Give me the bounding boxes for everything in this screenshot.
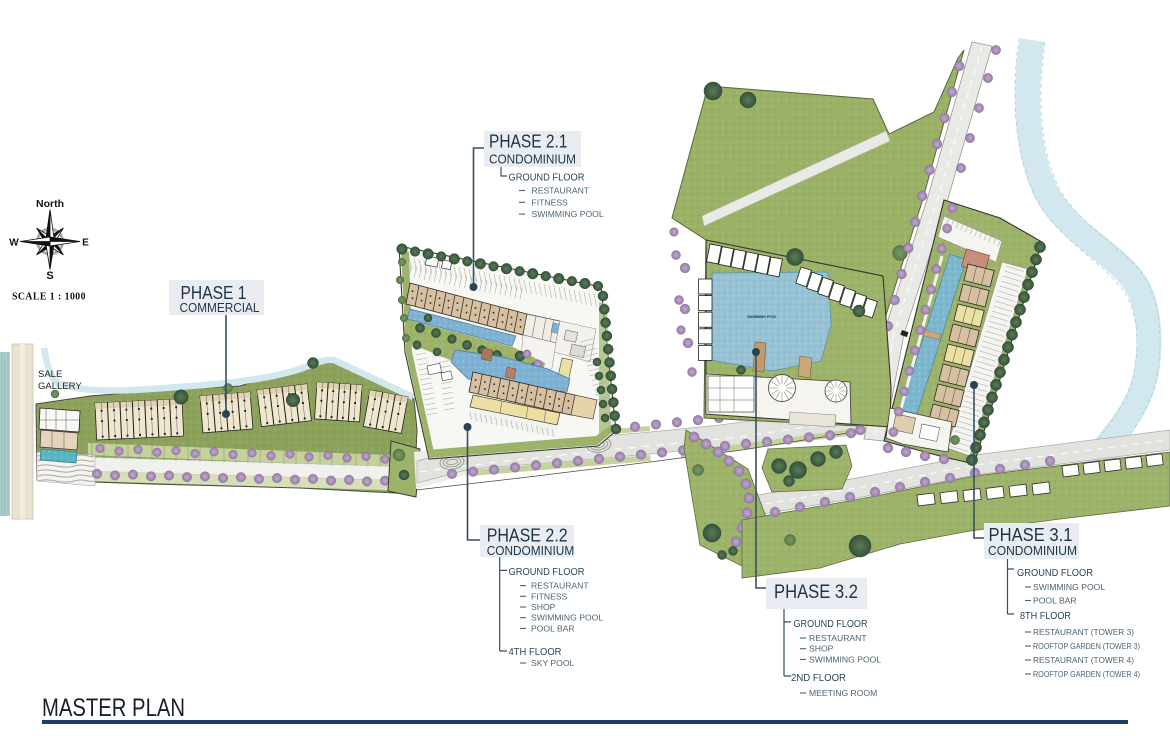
svg-text:PHASE 3.2: PHASE 3.2 [774, 582, 858, 603]
svg-text:SWIMMING POOL: SWIMMING POOL [809, 654, 881, 664]
svg-text:SKY POOL: SKY POOL [531, 658, 575, 668]
svg-text:GROUND FLOOR: GROUND FLOOR [509, 172, 585, 184]
svg-text:4TH FLOOR: 4TH FLOOR [509, 646, 562, 658]
svg-text:SWIMMING POOL: SWIMMING POOL [747, 315, 777, 319]
svg-text:POOL BAR: POOL BAR [531, 623, 575, 633]
svg-text:2ND FLOOR: 2ND FLOOR [791, 672, 846, 684]
svg-text:SALE: SALE [38, 369, 62, 380]
svg-text:PHASE 2.2: PHASE 2.2 [487, 526, 568, 546]
svg-text:PHASE 2.1: PHASE 2.1 [489, 132, 568, 152]
svg-text:S: S [46, 270, 53, 282]
svg-text:COMMERCIAL: COMMERCIAL [180, 300, 260, 315]
svg-text:POOL BAR: POOL BAR [1033, 596, 1077, 606]
svg-text:SWIMMING POOL: SWIMMING POOL [531, 613, 603, 623]
svg-text:RESTAURANT: RESTAURANT [809, 633, 867, 643]
svg-text:CONDOMINIUM: CONDOMINIUM [487, 544, 575, 558]
svg-text:ROOFTOP GARDEN (TOWER 4): ROOFTOP GARDEN (TOWER 4) [1033, 669, 1140, 679]
svg-text:RESTAURANT (TOWER 4): RESTAURANT (TOWER 4) [1033, 655, 1134, 665]
svg-text:PHASE 3.1: PHASE 3.1 [989, 525, 1073, 545]
svg-text:GROUND FLOOR: GROUND FLOOR [794, 618, 868, 630]
svg-text:GROUND FLOOR: GROUND FLOOR [509, 566, 585, 578]
svg-text:SHOP: SHOP [809, 644, 834, 654]
svg-text:FITNESS: FITNESS [532, 197, 569, 207]
svg-text:SWIMMING POOL: SWIMMING POOL [1033, 582, 1105, 592]
svg-text:ROOFTOP GARDEN (TOWER 3): ROOFTOP GARDEN (TOWER 3) [1033, 641, 1140, 651]
svg-text:W: W [9, 238, 19, 249]
svg-text:GALLERY: GALLERY [38, 381, 82, 392]
svg-text:SHOP: SHOP [531, 602, 556, 612]
svg-text:RESTAURANT: RESTAURANT [532, 186, 590, 196]
svg-text:GROUND FLOOR: GROUND FLOOR [1017, 567, 1093, 579]
svg-text:MASTER PLAN: MASTER PLAN [42, 694, 185, 722]
svg-text:FITNESS: FITNESS [531, 591, 568, 601]
svg-text:SWIMMING POOL: SWIMMING POOL [532, 209, 604, 219]
svg-text:RESTAURANT: RESTAURANT [531, 581, 589, 591]
svg-text:CONDOMINIUM: CONDOMINIUM [489, 153, 576, 167]
svg-text:RESTAURANT (TOWER 3): RESTAURANT (TOWER 3) [1033, 627, 1134, 637]
svg-text:CONDOMINIUM: CONDOMINIUM [988, 544, 1077, 558]
svg-text:E: E [82, 238, 89, 249]
svg-text:8TH FLOOR: 8TH FLOOR [1020, 610, 1071, 622]
svg-text:MEETING ROOM: MEETING ROOM [809, 688, 877, 698]
svg-text:SCALE 1 : 1000: SCALE 1 : 1000 [12, 292, 86, 303]
svg-text:North: North [36, 198, 64, 210]
